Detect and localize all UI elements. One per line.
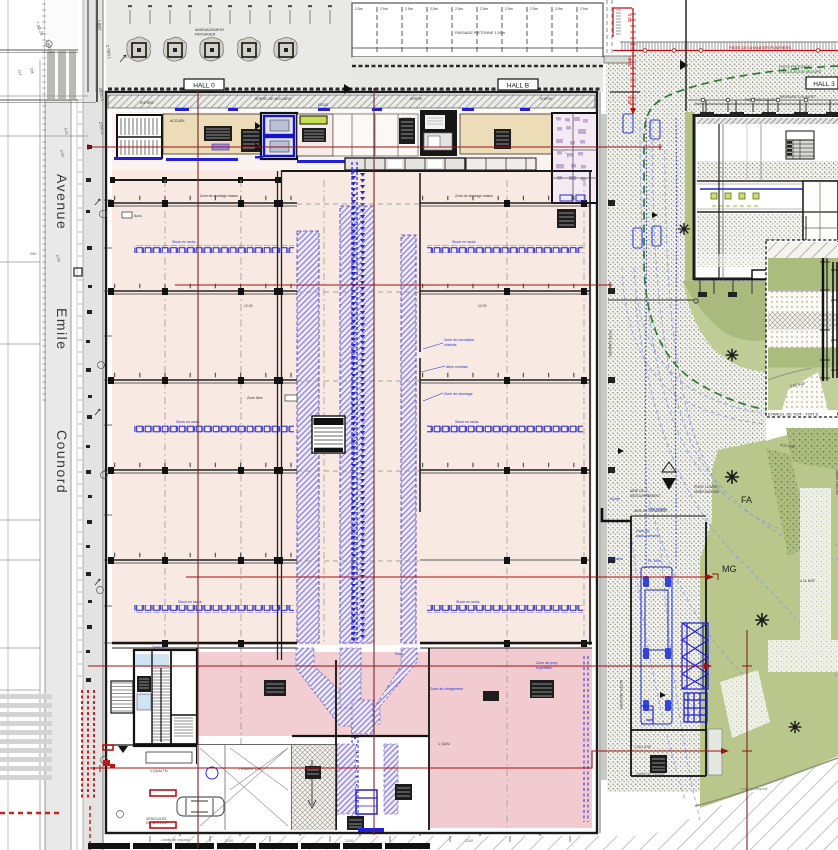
svg-text:Zone de stockage masse: Zone de stockage masse — [455, 194, 493, 198]
svg-text:12.00: 12.00 — [244, 304, 253, 308]
svg-text:Zone de: Zone de — [636, 529, 649, 533]
svg-text:ACCES SECOURS: ACCES SECOURS — [619, 680, 623, 710]
svg-text:3.00: 3.00 — [627, 96, 632, 105]
svg-text:2.5m: 2.5m — [430, 7, 438, 11]
svg-text:Zone de prep.: Zone de prep. — [536, 661, 558, 665]
svg-text:12.00: 12.00 — [465, 839, 473, 843]
svg-text:Allee centrale: Allee centrale — [446, 365, 468, 369]
svg-text:Accs: Accs — [134, 214, 142, 218]
svg-text:2.5m: 2.5m — [480, 7, 488, 11]
svg-text:1 QUAI: 1 QUAI — [438, 742, 450, 746]
svg-text:ETANCH. DE TOIT - TOIT S: ETANCH. DE TOIT - TOIT S — [768, 412, 818, 417]
svg-text:HALL 3: HALL 3 — [813, 81, 835, 88]
svg-text:SORTIE DE SECOURS: SORTIE DE SECOURS — [255, 97, 292, 101]
svg-text:HALL B: HALL B — [507, 83, 529, 90]
svg-text:Zone de stockage masse: Zone de stockage masse — [200, 194, 238, 198]
svg-text:Stock en racks: Stock en racks — [456, 600, 480, 604]
svg-text:12.00: 12.00 — [478, 304, 487, 308]
svg-text:PL 19ml: PL 19ml — [648, 559, 661, 563]
svg-text:Counord: Counord — [54, 430, 70, 494]
svg-text:Stock en racks: Stock en racks — [176, 420, 200, 424]
svg-text:FA: FA — [741, 495, 752, 505]
svg-text:Zone libre: Zone libre — [247, 396, 263, 400]
svg-text:2.5m: 2.5m — [380, 7, 388, 11]
svg-text:PASSAGE PIETONNE 1.50m: PASSAGE PIETONNE 1.50m — [455, 31, 505, 35]
svg-text:RETOURNEMENT: RETOURNEMENT — [630, 494, 661, 498]
svg-text:200: 200 — [30, 252, 36, 256]
svg-text:Stock en racks: Stock en racks — [455, 420, 479, 424]
svg-text:HALL 0: HALL 0 — [193, 83, 215, 90]
svg-text:12.00: 12.00 — [225, 839, 233, 843]
svg-text:PONT LOURD: PONT LOURD — [694, 485, 718, 489]
svg-text:PISTE DE CHANTIER POMPIERS: PISTE DE CHANTIER POMPIERS — [729, 45, 791, 50]
svg-text:2.5m: 2.5m — [355, 7, 363, 11]
svg-text:2.5m: 2.5m — [530, 7, 538, 11]
svg-text:Avenue: Avenue — [54, 174, 70, 230]
svg-text:Limite de espace: Limite de espace — [636, 772, 665, 776]
svg-text:TGBT: TGBT — [402, 117, 411, 121]
svg-text:3.50: 3.50 — [627, 58, 632, 67]
svg-text:Acces: Acces — [610, 497, 620, 501]
svg-text:4.00: 4.00 — [627, 14, 632, 23]
svg-text:12.00: 12.00 — [345, 839, 353, 843]
svg-text:Quai niv.: Quai niv. — [152, 645, 166, 649]
svg-text:SORTIE: SORTIE — [540, 97, 553, 101]
svg-text:Zone: Zone — [395, 652, 403, 656]
svg-text:4.11 NGF: 4.11 NGF — [800, 579, 816, 583]
svg-text:Zone de chargement: Zone de chargement — [430, 687, 463, 691]
svg-text:PISTE CAMIONS: PISTE CAMIONS — [608, 330, 612, 357]
svg-text:PAYSAGER: PAYSAGER — [195, 33, 216, 37]
svg-text:2.5m: 2.5m — [505, 7, 513, 11]
svg-text:expedition: expedition — [536, 666, 552, 670]
svg-text:CIRCULATION SECURE: CIRCULATION SECURE — [779, 70, 822, 74]
svg-text:2.5m: 2.5m — [580, 7, 588, 11]
svg-text:2.5m: 2.5m — [405, 7, 413, 11]
svg-text:AIRE DE: AIRE DE — [630, 489, 645, 493]
svg-text:Zone de stockage: Zone de stockage — [444, 392, 473, 396]
svg-text:stationnement: stationnement — [636, 534, 659, 538]
svg-text:1 QUAI TN: 1 QUAI TN — [150, 769, 168, 773]
svg-text:Zone de circulation: Zone de circulation — [444, 338, 474, 342]
svg-text:Stock en racks: Stock en racks — [452, 240, 476, 244]
svg-text:VERIFICATION: VERIFICATION — [694, 490, 719, 494]
svg-text:AIRE DE LIVRAISON: AIRE DE LIVRAISON — [634, 509, 667, 513]
svg-text:MG: MG — [722, 564, 737, 574]
svg-text:SORTIE: SORTIE — [410, 97, 423, 101]
svg-text:ACCUEIL: ACCUEIL — [170, 119, 185, 123]
svg-text:PASSAGE COUVERT: PASSAGE COUVERT — [780, 95, 816, 99]
svg-text:chariots: chariots — [444, 343, 457, 347]
svg-text:Limite de emprise: Limite de emprise — [740, 787, 768, 791]
svg-text:pompiers: pompiers — [608, 557, 623, 561]
svg-text:Limite de espace: Limite de espace — [161, 838, 190, 842]
svg-text:ISSUE: ISSUE — [318, 103, 329, 107]
svg-text:AMENAGEMENT: AMENAGEMENT — [195, 28, 225, 32]
svg-text:Stock en racks: Stock en racks — [172, 240, 196, 244]
svg-text:Emile: Emile — [54, 308, 70, 351]
svg-text:2.5m: 2.5m — [455, 7, 463, 11]
svg-text:ENTREE: ENTREE — [140, 101, 154, 105]
svg-text:7.00 x 3.00: 7.00 x 3.00 — [634, 745, 651, 749]
svg-text:PISTE PIETONNE: PISTE PIETONNE — [779, 65, 811, 69]
svg-text:2.5m: 2.5m — [555, 7, 563, 11]
